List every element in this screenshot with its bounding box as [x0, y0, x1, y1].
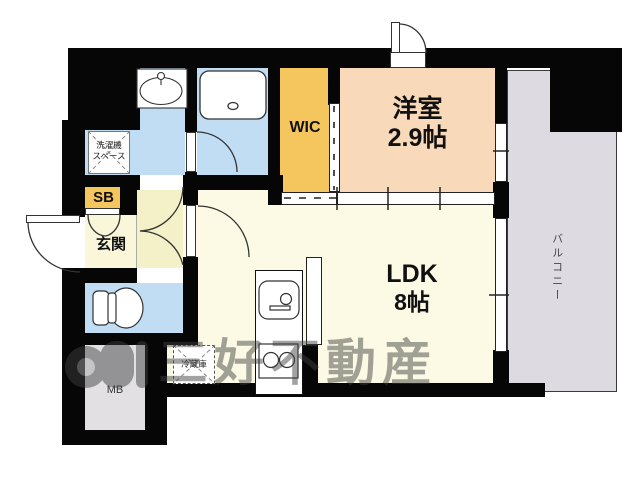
sb-label: SB	[85, 189, 122, 206]
laundry-label-line1: 洗濯機	[87, 140, 131, 151]
western-room-size: 2.9帖	[340, 124, 495, 153]
ldk-door-arc	[198, 206, 249, 257]
bathtub-icon	[200, 71, 266, 119]
floor-plan: 洋室 2.9帖 LDK 8帖 WIC 玄関 SB MB バルコニー 洗濯機 スペ…	[0, 0, 640, 480]
ldk-name: LDK	[352, 260, 472, 289]
laundry-label-line2: スペース	[87, 151, 131, 162]
western-door-arc	[400, 24, 426, 53]
washbasin-icon	[137, 69, 187, 108]
stove-icon	[259, 344, 298, 378]
sb-door-arc-left	[88, 215, 106, 236]
mb-label: MB	[95, 384, 135, 397]
balcony-label: バルコニー	[550, 220, 563, 315]
ldk-size: 8帖	[352, 289, 472, 315]
hall-door-arc-lower	[140, 231, 183, 265]
wic-label: WIC	[280, 119, 330, 137]
laundry-label: 洗濯機 スペース	[87, 140, 131, 161]
kitchen-sink-icon	[259, 281, 299, 319]
entrance-door-arc	[28, 223, 80, 272]
bathroom-door-arc	[197, 132, 237, 172]
western-room-name: 洋室	[340, 95, 495, 124]
western-room-label: 洋室 2.9帖	[340, 95, 495, 153]
fridge-label: 冷蔵庫	[173, 359, 215, 370]
toilet-icon	[93, 288, 143, 328]
ldk-label: LDK 8帖	[352, 260, 472, 315]
genkan-label: 玄関	[85, 236, 137, 253]
sb-door-arc-right	[106, 215, 120, 236]
hall-door-arc-upper	[140, 187, 183, 231]
